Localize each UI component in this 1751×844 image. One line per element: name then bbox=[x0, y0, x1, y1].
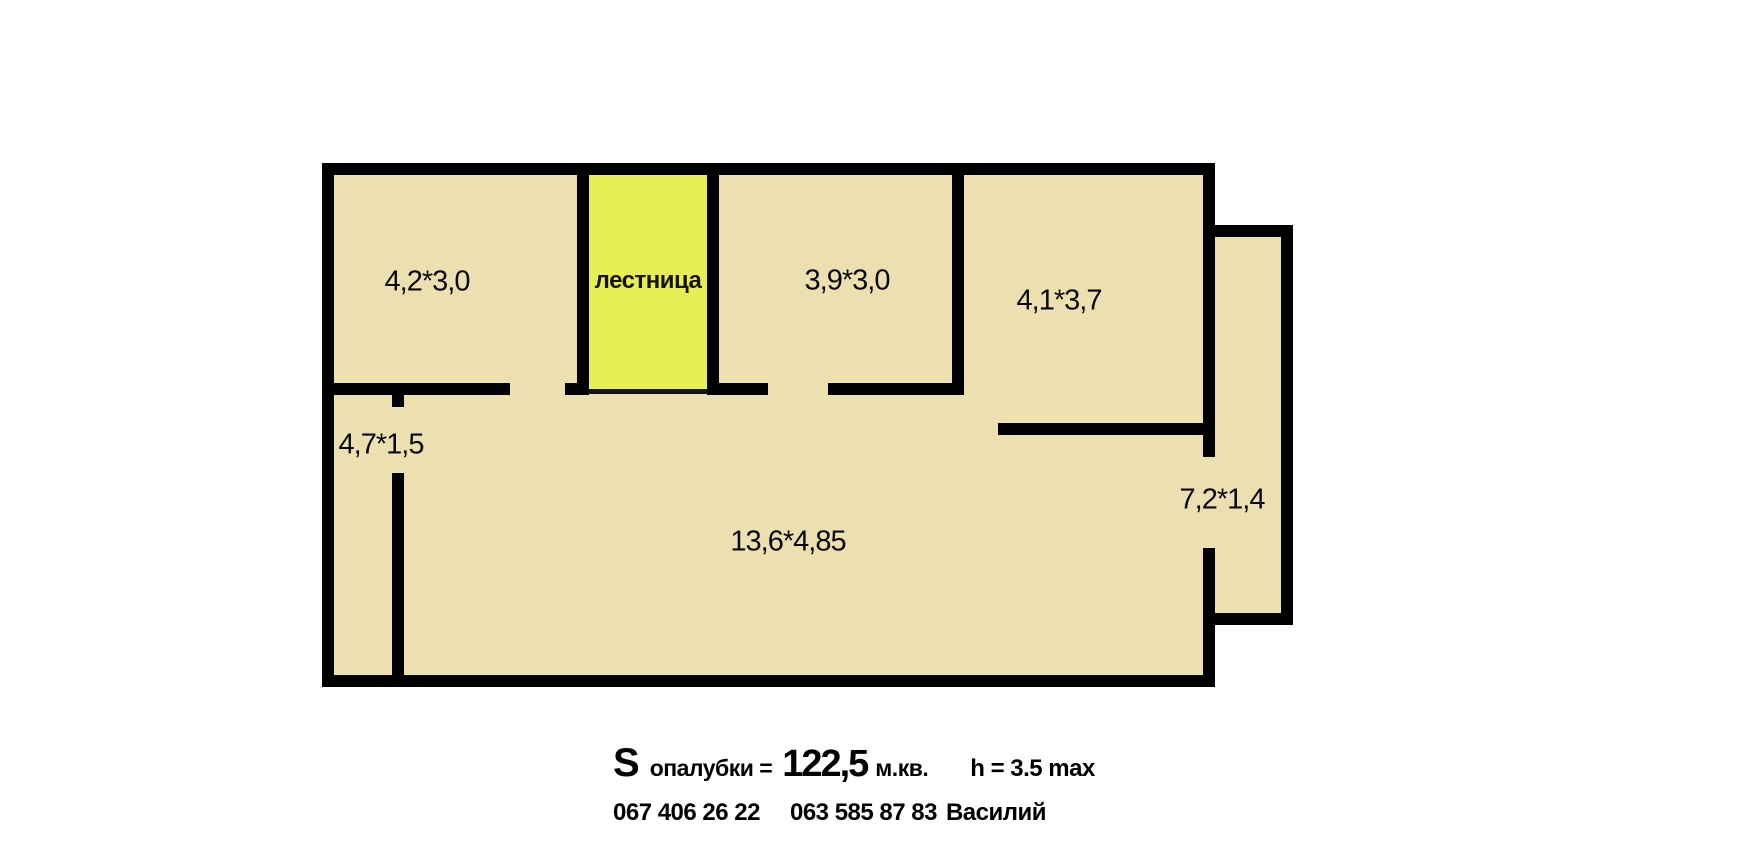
wall-outer-left bbox=[322, 163, 334, 687]
wall-annex-bottom bbox=[1203, 613, 1293, 625]
label-staircase: лестница bbox=[595, 267, 702, 295]
wall-annex-top bbox=[1203, 225, 1293, 237]
label-room-top-middle: 3,9*3,0 bbox=[805, 265, 890, 298]
height-limit-note: h = 3.5 max bbox=[970, 755, 1095, 783]
contact-phone-1: 067 406 26 22 bbox=[613, 799, 760, 827]
contacts-line: 067 406 26 22 063 585 87 83 Василий bbox=[613, 799, 1046, 827]
wall-annex-right bbox=[1281, 225, 1293, 625]
contact-phone-2: 063 585 87 83 bbox=[790, 799, 937, 827]
label-room-top-left: 4,2*3,0 bbox=[385, 266, 470, 299]
floor-plan-canvas: 4,2*3,0 лестница 3,9*3,0 4,1*3,7 4,7*1,5… bbox=[0, 0, 1751, 844]
wall-room2-bottom-left bbox=[719, 383, 768, 395]
wall-divider-rooms bbox=[952, 175, 964, 395]
area-unit: м.кв. bbox=[875, 755, 928, 782]
wall-stair-left-foot bbox=[565, 383, 577, 395]
wall-outer-top bbox=[322, 163, 1215, 175]
wall-room1-bottom bbox=[334, 383, 510, 395]
label-corridor-left: 4,7*1,5 bbox=[339, 429, 424, 462]
area-label: опалубки = bbox=[650, 755, 773, 782]
wall-stair-left bbox=[577, 175, 589, 395]
contact-name: Василий bbox=[946, 799, 1046, 827]
wall-room3-bottom bbox=[998, 423, 1203, 435]
wall-corridor-right bbox=[392, 473, 404, 675]
annex-floor-area bbox=[1215, 237, 1281, 613]
wall-stair-right bbox=[707, 175, 719, 395]
label-main-hall: 13,6*4,85 bbox=[730, 526, 845, 559]
area-summary-line: S опалубки = 122,5 м.кв. h = 3.5 max bbox=[613, 743, 1095, 783]
wall-room2-bottom-right bbox=[828, 383, 953, 395]
wall-outer-bottom bbox=[322, 675, 1215, 687]
wall-corridor-stub bbox=[392, 383, 404, 407]
label-annex-right: 7,2*1,4 bbox=[1180, 484, 1265, 517]
area-symbol: S bbox=[613, 743, 640, 783]
area-value: 122,5 bbox=[782, 745, 867, 783]
label-room-top-right: 4,1*3,7 bbox=[1017, 285, 1102, 318]
wall-outer-right-upper bbox=[1203, 163, 1215, 457]
